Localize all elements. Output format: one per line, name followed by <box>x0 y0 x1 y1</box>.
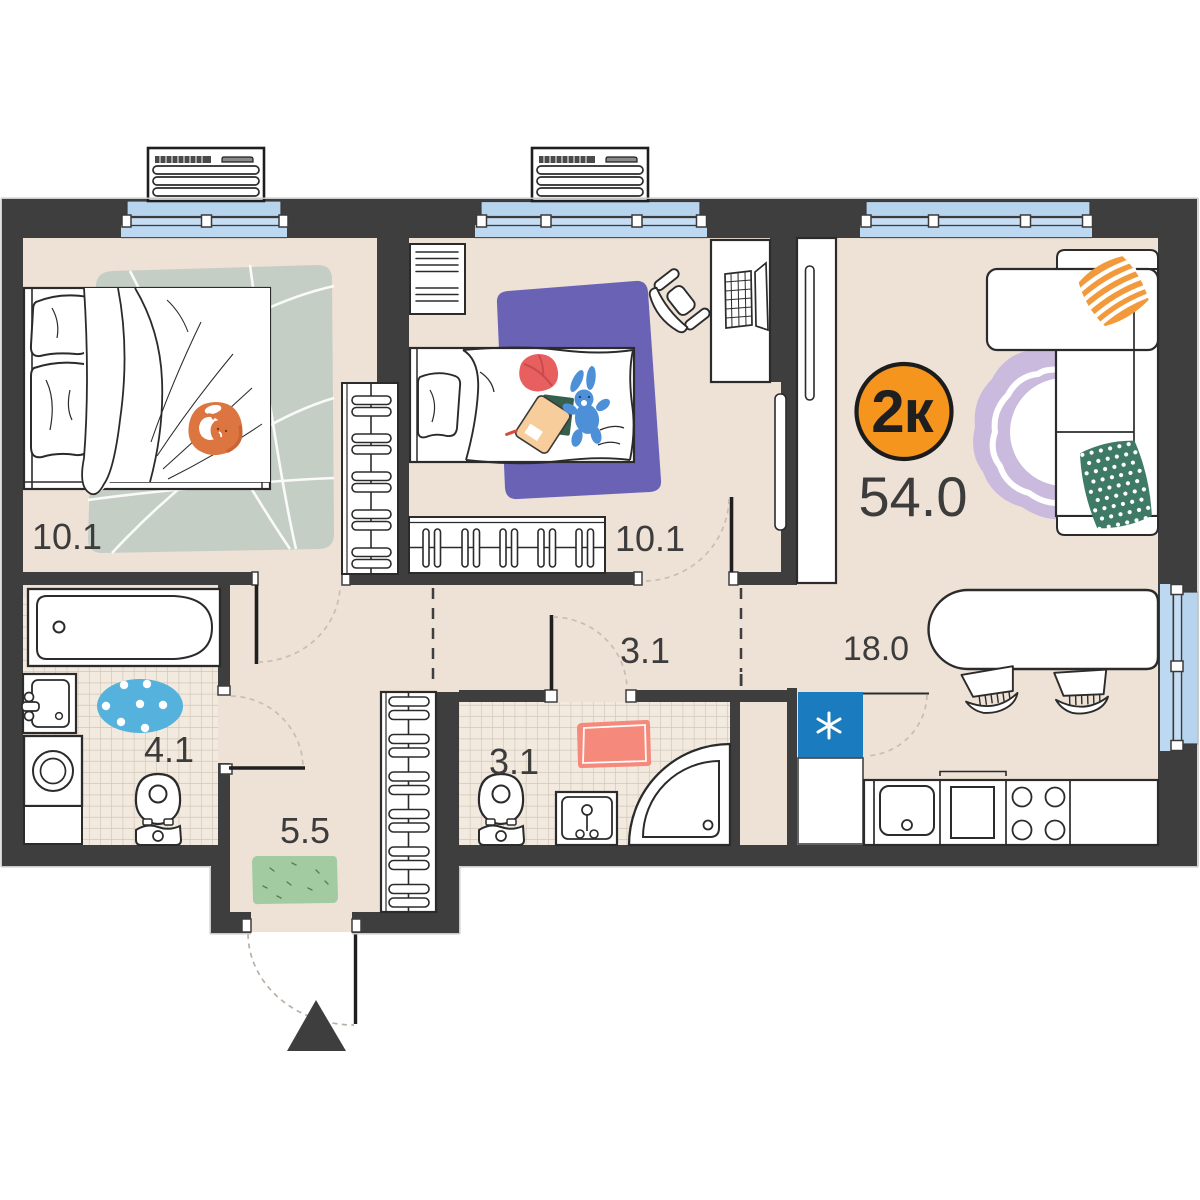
svg-text:5.5: 5.5 <box>280 810 330 851</box>
svg-text:10.1: 10.1 <box>32 516 102 557</box>
svg-text:54.0: 54.0 <box>859 465 968 528</box>
svg-text:3.1: 3.1 <box>620 630 670 671</box>
svg-text:2к: 2к <box>871 378 934 445</box>
svg-text:18.0: 18.0 <box>843 630 909 668</box>
svg-text:4.1: 4.1 <box>144 729 194 770</box>
svg-text:3.1: 3.1 <box>489 741 539 782</box>
svg-text:10.1: 10.1 <box>615 518 685 559</box>
